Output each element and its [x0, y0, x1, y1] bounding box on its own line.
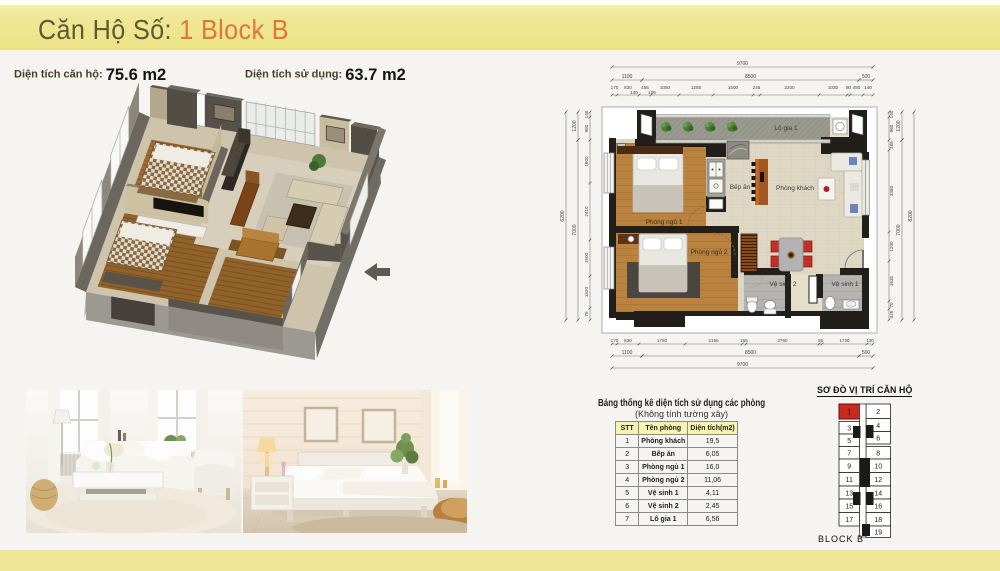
svg-text:6: 6 — [876, 436, 880, 443]
svg-text:11: 11 — [846, 477, 853, 484]
svg-text:19: 19 — [874, 530, 882, 537]
svg-text:14: 14 — [874, 490, 882, 497]
svg-text:8: 8 — [876, 451, 880, 458]
svg-text:10: 10 — [874, 464, 882, 471]
svg-text:4: 4 — [876, 423, 880, 430]
svg-text:5: 5 — [847, 438, 851, 445]
svg-text:17: 17 — [845, 517, 853, 524]
svg-text:16: 16 — [874, 504, 882, 511]
svg-text:13: 13 — [845, 490, 853, 497]
svg-text:1: 1 — [847, 408, 852, 417]
svg-text:9: 9 — [847, 464, 851, 471]
svg-text:15: 15 — [845, 504, 853, 511]
svg-text:7: 7 — [847, 451, 851, 458]
svg-text:12: 12 — [874, 477, 882, 484]
svg-text:18: 18 — [874, 517, 882, 524]
svg-text:2: 2 — [876, 409, 880, 416]
svg-text:3: 3 — [847, 426, 851, 433]
